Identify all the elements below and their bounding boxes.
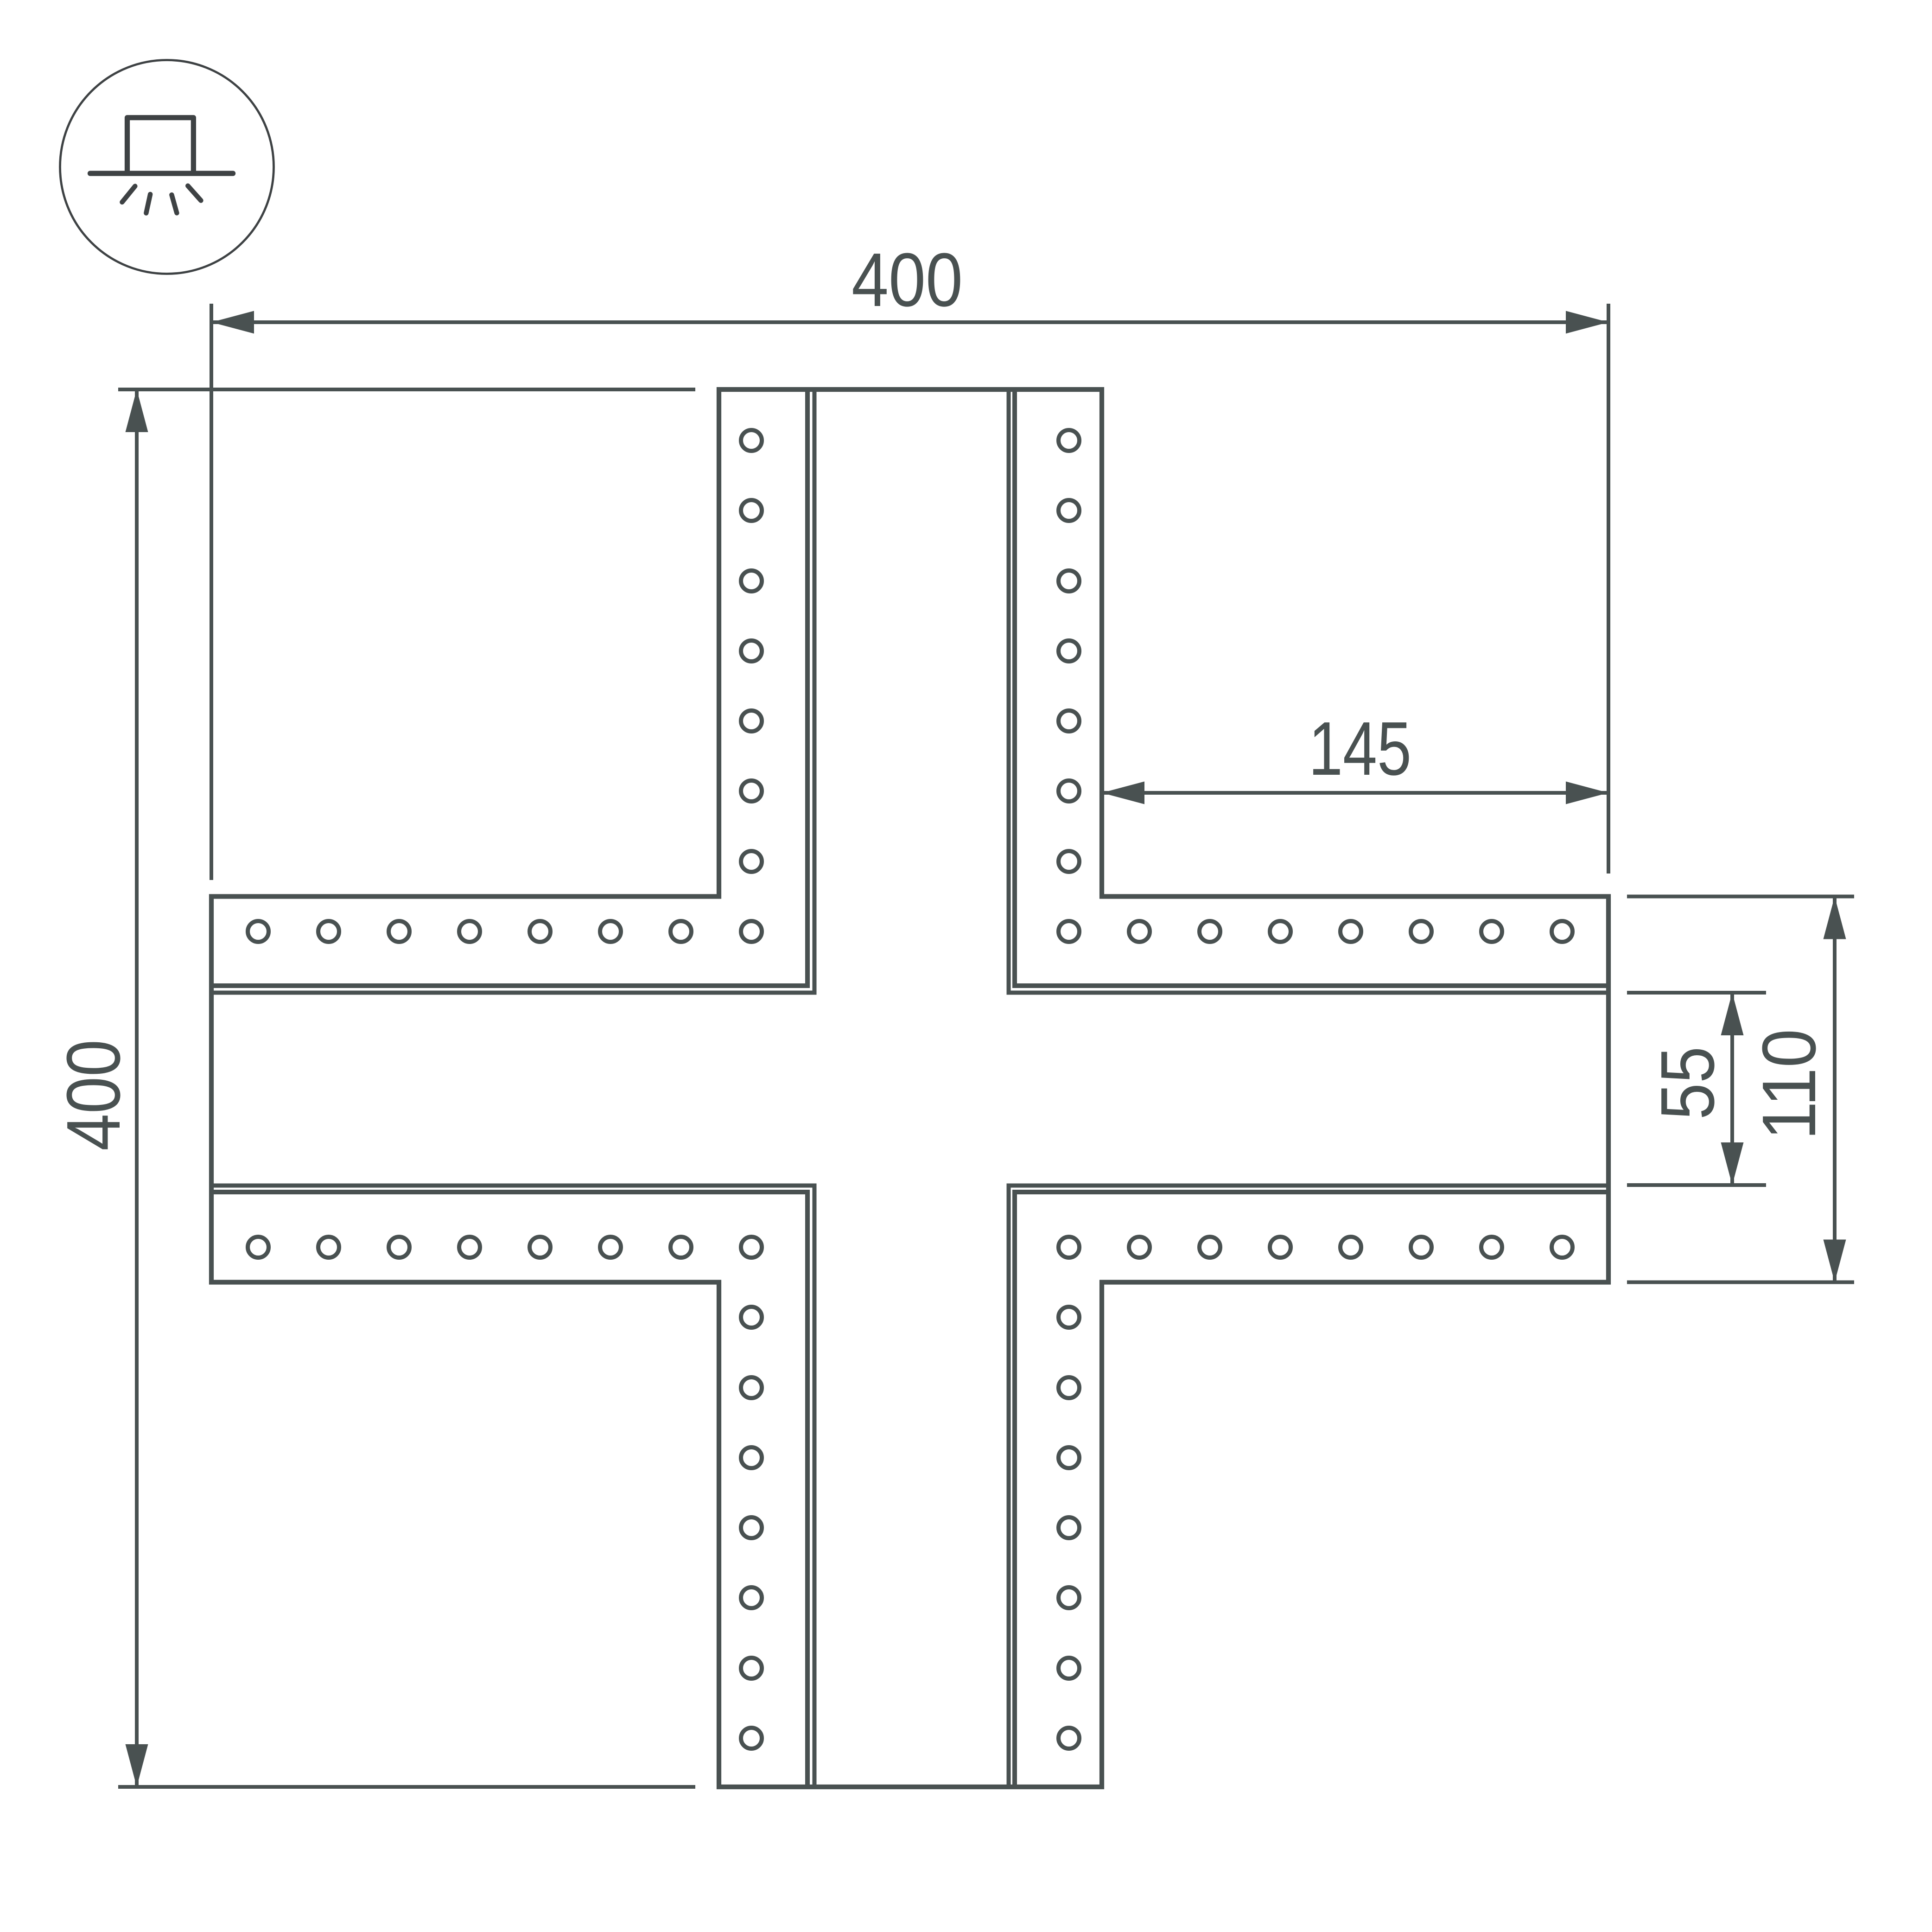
svg-text:400: 400 bbox=[852, 237, 963, 322]
svg-text:55: 55 bbox=[1645, 1046, 1730, 1120]
svg-text:110: 110 bbox=[1747, 1029, 1831, 1140]
svg-text:145: 145 bbox=[1309, 706, 1411, 791]
svg-text:400: 400 bbox=[51, 1039, 136, 1151]
